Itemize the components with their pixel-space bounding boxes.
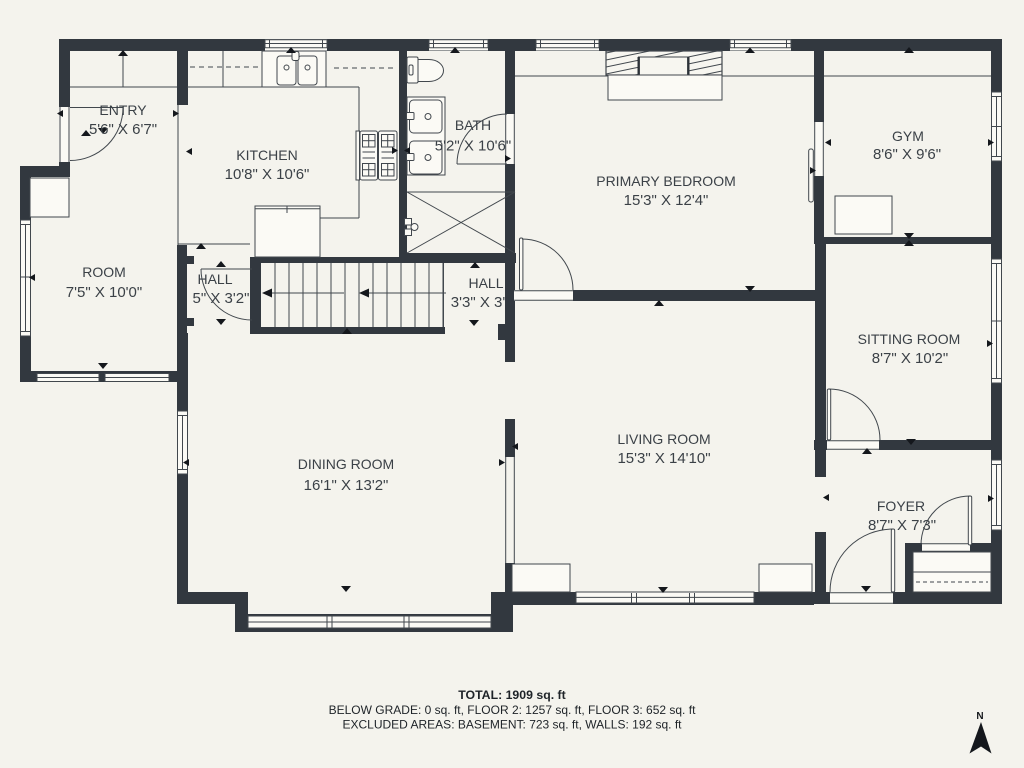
svg-text:DINING ROOM: DINING ROOM [298, 456, 394, 472]
svg-text:FOYER: FOYER [877, 498, 925, 514]
svg-text:TOTAL: 1909 sq. ft: TOTAL: 1909 sq. ft [458, 688, 566, 702]
svg-text:8'6" X 9'6": 8'6" X 9'6" [873, 146, 941, 163]
svg-text:PRIMARY BEDROOM: PRIMARY BEDROOM [596, 173, 736, 189]
svg-text:GYM: GYM [892, 128, 924, 144]
svg-text:LIVING ROOM: LIVING ROOM [617, 431, 710, 447]
svg-text:8'7" X 10'2": 8'7" X 10'2" [872, 350, 948, 367]
svg-text:HALL: HALL [197, 271, 232, 287]
svg-text:10'8" X 10'6": 10'8" X 10'6" [225, 166, 310, 183]
svg-text:ROOM: ROOM [82, 264, 126, 280]
svg-text:N: N [976, 711, 983, 722]
svg-text:7'5" X 10'0": 7'5" X 10'0" [66, 284, 142, 301]
svg-text:5'2" X 10'6": 5'2" X 10'6" [435, 138, 511, 155]
svg-text:5'6" X 6'7": 5'6" X 6'7" [89, 121, 157, 138]
svg-text:BELOW GRADE: 0 sq. ft, FLOOR 2: BELOW GRADE: 0 sq. ft, FLOOR 2: 1257 sq.… [329, 703, 696, 717]
svg-text:15'3" X 14'10": 15'3" X 14'10" [617, 450, 710, 467]
svg-text:SITTING ROOM: SITTING ROOM [858, 331, 961, 347]
svg-text:3'3" X 3': 3'3" X 3' [451, 294, 506, 311]
svg-text:16'1" X 13'2": 16'1" X 13'2" [304, 477, 389, 494]
svg-text:BATH: BATH [455, 117, 491, 133]
svg-text:15'3" X 12'4": 15'3" X 12'4" [624, 192, 709, 209]
svg-text:HALL: HALL [468, 275, 503, 291]
svg-text:EXCLUDED AREAS: BASEMENT: 723: EXCLUDED AREAS: BASEMENT: 723 sq. ft, WA… [342, 718, 682, 732]
svg-text:5" X 3'2": 5" X 3'2" [193, 290, 250, 307]
svg-text:8'7" X 7'3": 8'7" X 7'3" [868, 517, 936, 534]
svg-text:KITCHEN: KITCHEN [236, 147, 297, 163]
svg-text:ENTRY: ENTRY [99, 102, 147, 118]
